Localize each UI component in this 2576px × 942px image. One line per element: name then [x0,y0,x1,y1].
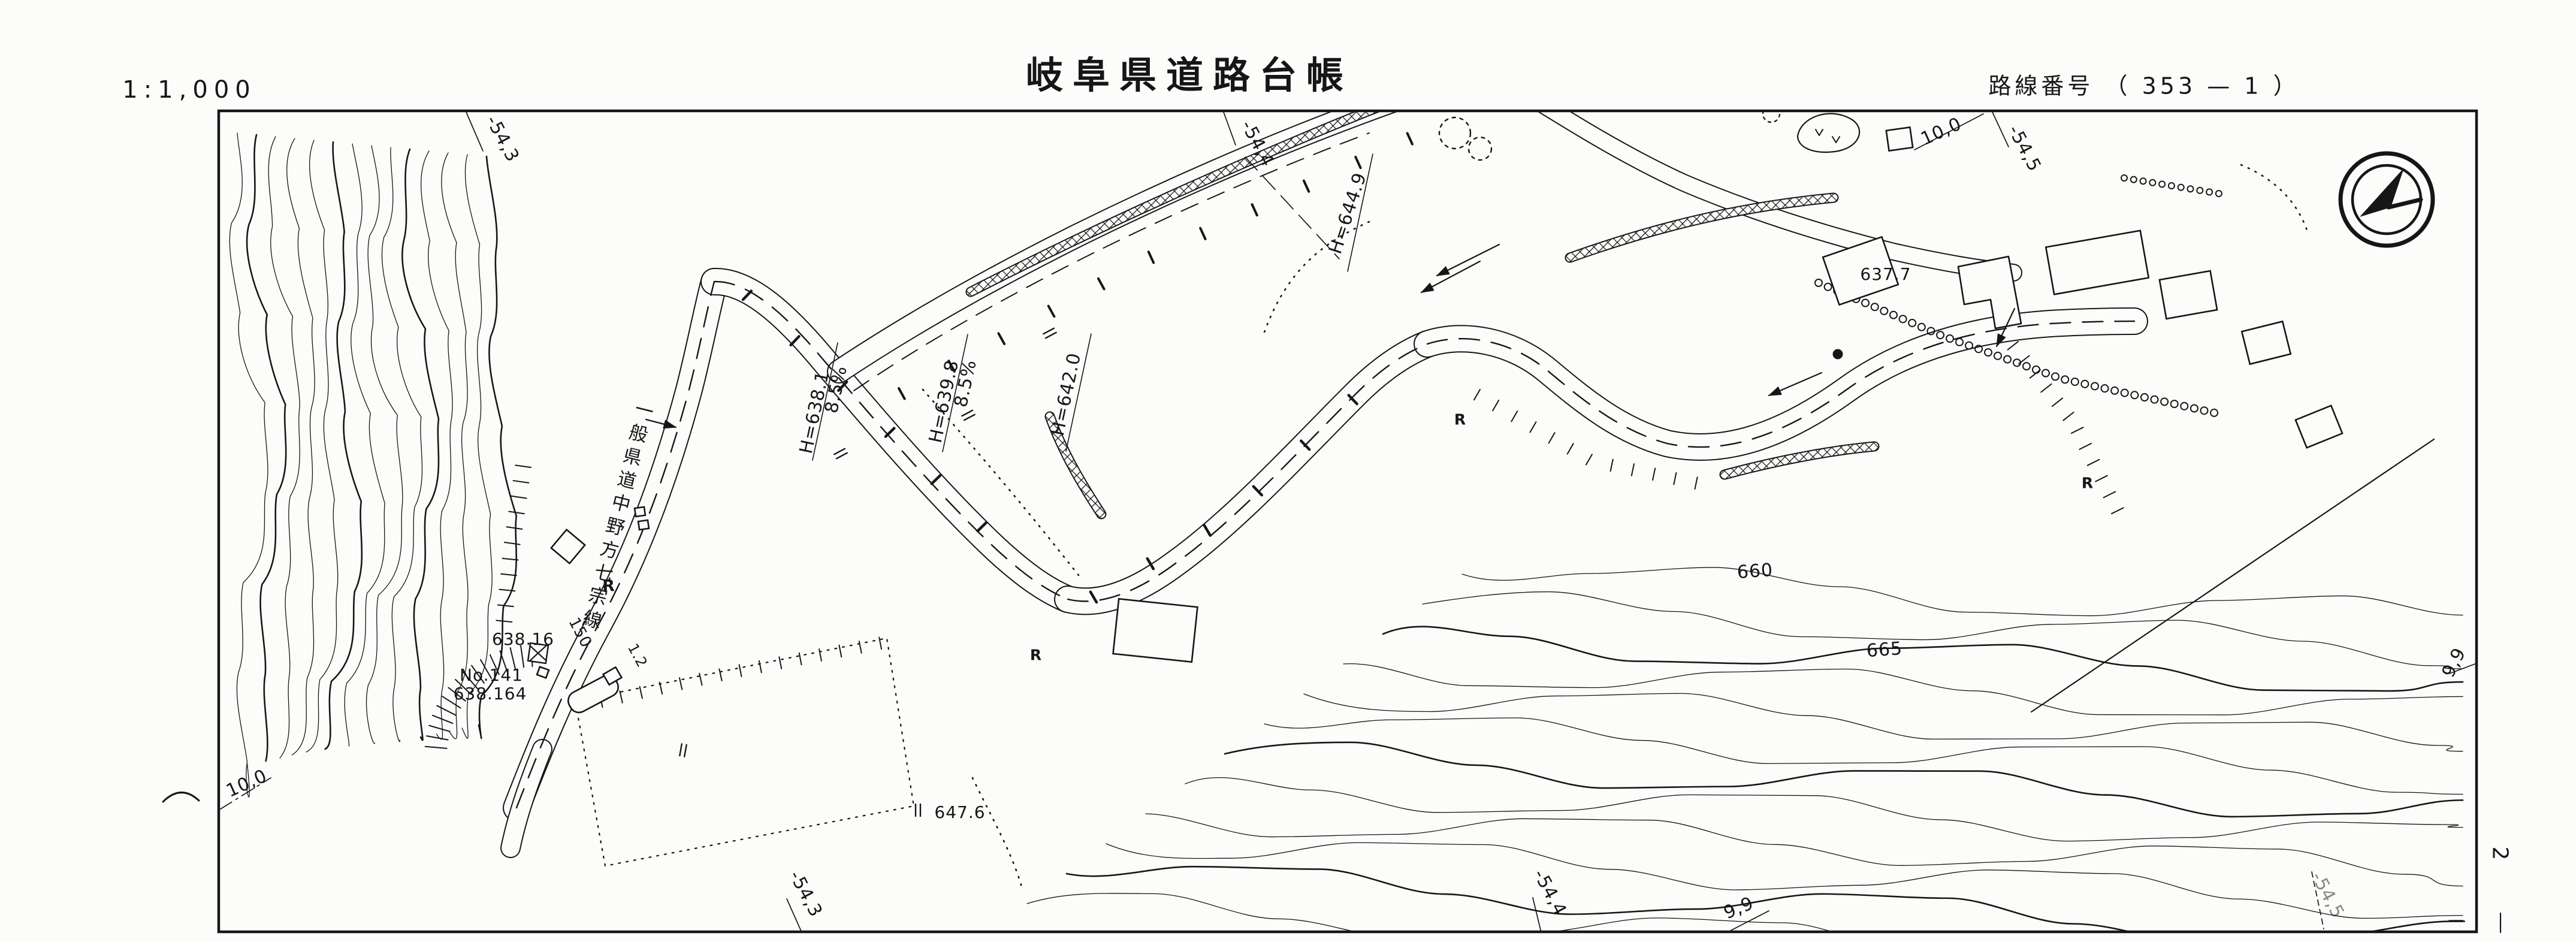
spot-height-label: 647.6 [934,804,985,821]
page-title: 岐阜県道路台帳 [1026,45,1353,99]
route-number: 路線番号 （ 353 — 1 ） [1988,68,2299,101]
road-mark-label: R [602,578,615,594]
sheet-number: 2 [2488,847,2512,861]
map-canvas [0,0,2576,942]
road-ledger-sheet: 1:1,000 岐阜県道路台帳 路線番号 （ 353 — 1 ） 2 一般県道中… [0,0,2576,942]
spot-height-label: 665 [1866,640,1903,660]
north-arrow-icon [2341,153,2433,246]
spot-height-label: 638.16 [492,631,554,648]
spot-height-label: 638.164 [454,686,527,702]
spot-height-label: 637.7 [1860,266,1911,283]
route-number-label: 路線番号 [1988,73,2094,99]
map-scale: 1:1,000 [122,76,256,104]
road-mark-label: R [1454,412,1466,427]
spot-height-label: No.141 [460,667,523,684]
spot-height-label: 660 [1737,561,1774,582]
road-mark-label: R [2082,476,2094,491]
route-number-value: （ 353 — 1 ） [2105,73,2300,99]
road-mark-label: R [1030,648,1042,663]
